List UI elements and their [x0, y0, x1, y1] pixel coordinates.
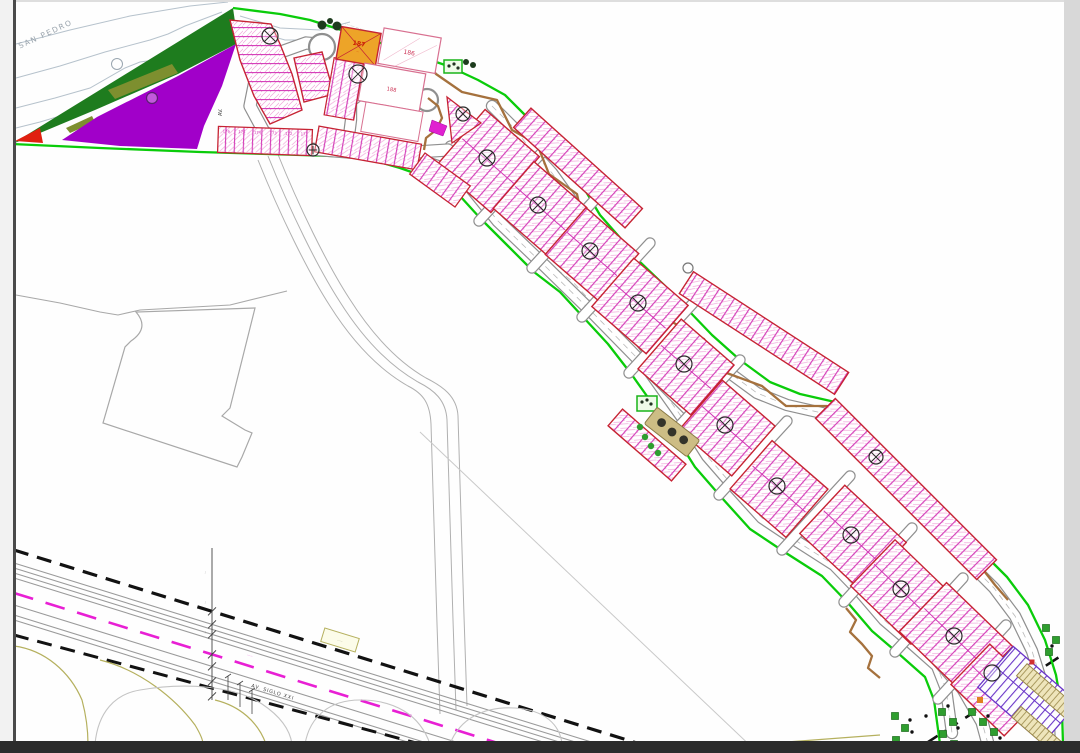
point-symbol — [946, 704, 949, 707]
tree-symbol — [327, 18, 333, 24]
tree-square — [1046, 649, 1053, 656]
shrub-symbol — [637, 424, 643, 430]
tree-square — [1053, 637, 1060, 644]
utility-dot — [649, 402, 652, 405]
lot-number: 172 — [285, 131, 293, 136]
shrub-symbol — [642, 434, 648, 440]
tree-symbol — [463, 59, 469, 65]
tree-square — [991, 729, 998, 736]
tree-square — [892, 713, 899, 720]
scan-bottom-border — [0, 741, 1080, 753]
point-symbol — [908, 718, 911, 721]
scanned-site-plan-page: ······176175174173172171187····186188RIO… — [0, 0, 1080, 753]
tree-symbol — [333, 22, 342, 31]
lot-number: 176 — [223, 129, 231, 134]
shrub-symbol — [655, 450, 661, 456]
scan-left-border — [13, 0, 16, 741]
block-marker — [683, 263, 693, 273]
lot-number: 175 — [238, 129, 246, 134]
tree-square — [950, 719, 957, 726]
shrub-symbol — [648, 443, 654, 449]
tree-square — [939, 709, 946, 716]
lot-row: 176175174173172171 — [218, 126, 313, 155]
utility-dot — [640, 400, 643, 403]
point-symbol — [956, 726, 959, 729]
utility-dot — [645, 398, 648, 401]
lot-number: 174 — [254, 130, 262, 135]
orange-feature — [977, 697, 983, 703]
utility-dot — [452, 62, 455, 65]
map-shape — [218, 126, 313, 155]
lot-number: 173 — [269, 130, 277, 135]
tree-square — [940, 731, 947, 738]
lot-number: 171 — [301, 131, 309, 136]
utility-box — [444, 60, 462, 73]
block-marker — [147, 93, 158, 104]
point-symbol — [998, 736, 1001, 739]
site-plan-drawing: ······176175174173172171187····186188RIO… — [0, 0, 1080, 753]
scan-top-edge — [16, 0, 1064, 2]
point-symbol — [910, 730, 913, 733]
red-feature — [1030, 660, 1035, 665]
tree-square — [980, 719, 987, 726]
point-symbol — [924, 714, 927, 717]
tree-square — [902, 725, 909, 732]
utility-dot — [456, 66, 459, 69]
lot-micro-text: ···· — [356, 50, 360, 54]
point-symbol — [1050, 644, 1053, 647]
point-symbol — [986, 714, 989, 717]
block-marker — [984, 665, 1000, 681]
scan-left-shade — [0, 0, 13, 741]
tree-symbol — [470, 62, 476, 68]
utility-box — [637, 396, 657, 411]
tree-square — [969, 709, 976, 716]
tree-symbol — [318, 21, 327, 30]
vertical-street-label: AV. — [218, 108, 224, 116]
tree-square — [1043, 625, 1050, 632]
utility-dot — [447, 64, 450, 67]
scan-right-margin — [1064, 0, 1080, 741]
purple-area-note: ···· — [150, 107, 154, 111]
